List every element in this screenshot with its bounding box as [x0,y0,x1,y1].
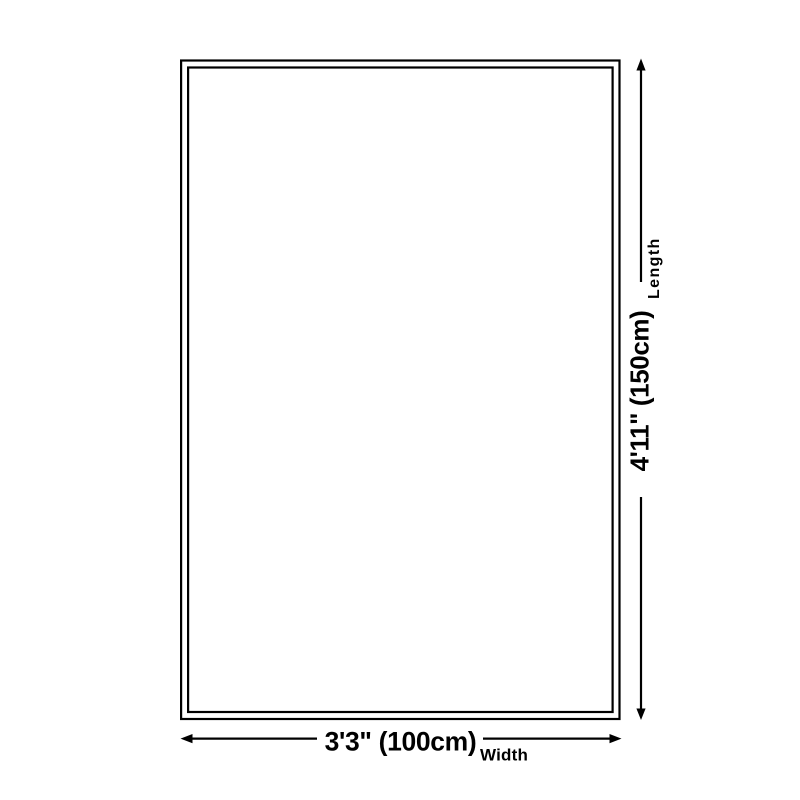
svg-text:4'11" (150cm): 4'11" (150cm) [625,311,655,472]
svg-text:Width: Width [480,745,528,764]
svg-text:3'3" (100cm): 3'3" (100cm) [325,726,477,756]
svg-text:Length: Length [646,237,663,299]
